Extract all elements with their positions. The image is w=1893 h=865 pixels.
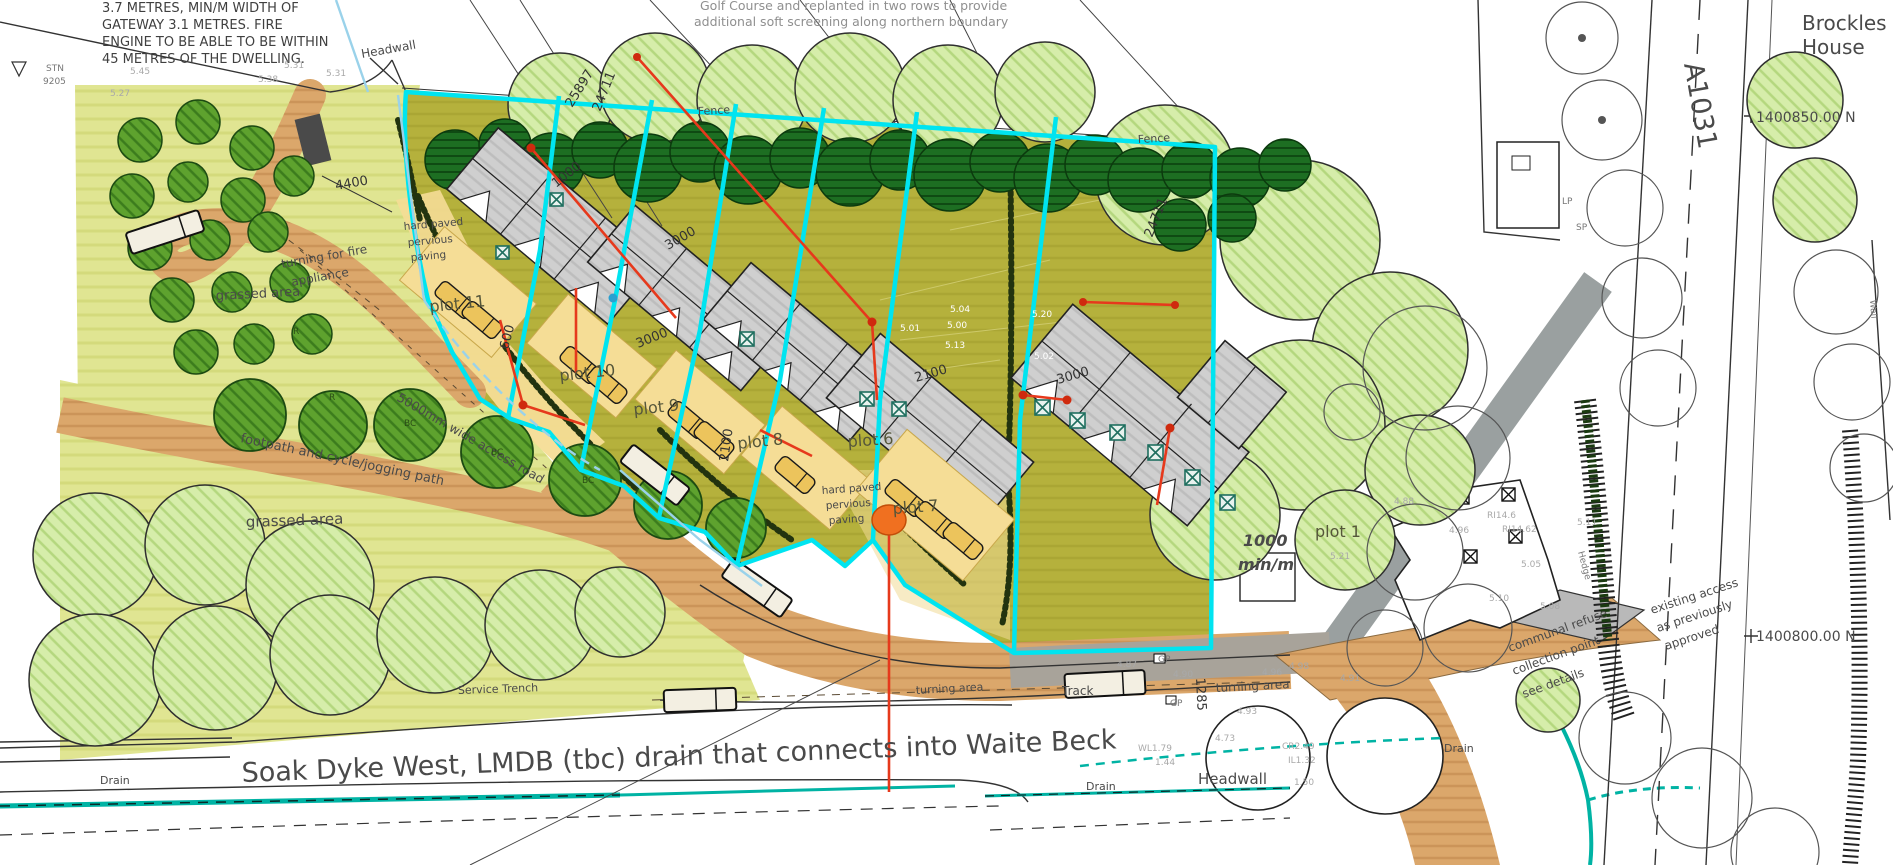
track-label: Track	[1061, 684, 1093, 698]
tree-code: R	[293, 327, 299, 337]
grid-ref-south: 1400800.00 N	[1756, 629, 1856, 645]
spot-level: 5.04	[950, 305, 970, 315]
spot-level: 4.93	[1237, 707, 1257, 717]
spot-level: 4.98	[1289, 662, 1309, 672]
headwall-bottom-label: Headwall	[1198, 770, 1267, 788]
tree-code: R	[329, 393, 335, 403]
spot-level: 5.45	[130, 67, 150, 77]
brockles-house-line1: Brockles	[1802, 11, 1887, 35]
drain-mid-label: Drain	[1086, 780, 1116, 793]
turning-area-east-label: turning area	[1215, 677, 1289, 695]
fire-note-line1: 3.7 METRES, MIN/M WIDTH OF	[102, 1, 299, 16]
spot-level: 5.31	[326, 69, 346, 79]
drain-east-label: Drain	[1444, 742, 1474, 755]
grassed-area-lower-label: grassed area	[246, 510, 344, 531]
gp-lower-label: GP	[1170, 699, 1183, 709]
roof-vent-mark	[496, 246, 509, 259]
spot-level: 1.44	[1155, 758, 1175, 768]
golf-note-line2: additional soft screening along northern…	[694, 14, 1009, 29]
spot-level: 5.02	[1034, 352, 1054, 362]
spot-level: 5.10	[1489, 594, 1509, 604]
spot-level: RI14.62	[1502, 525, 1537, 535]
tree-code: BC	[491, 448, 503, 458]
drain-west-label: Drain	[100, 774, 130, 787]
fire-note-line2: GATEWAY 3.1 METRES. FIRE	[102, 18, 283, 33]
spot-level: 4.96	[1449, 526, 1469, 536]
plot-7-label: plot 7	[892, 496, 939, 518]
a1031-road-label: A1031	[1677, 60, 1723, 151]
tree-code: BC	[404, 419, 416, 429]
golf-note-line1: Golf Course and replanted in two rows to…	[700, 0, 1007, 13]
site-plan-canvas: 3.7 METRES, MIN/M WIDTH OF GATEWAY 3.1 M…	[0, 0, 1893, 865]
spot-level: 1.50	[1294, 778, 1314, 788]
spot-level: 5.38	[258, 75, 278, 85]
site-plan: 3.7 METRES, MIN/M WIDTH OF GATEWAY 3.1 M…	[0, 0, 1893, 865]
spot-level: 5.01	[900, 324, 920, 334]
spot-level: CR2.49	[1282, 742, 1315, 752]
fire-note-line3: ENGINE TO BE ABLE TO BE WITHIN	[102, 35, 328, 50]
spot-level: 5.21	[1330, 552, 1350, 562]
spot-level: 5.20	[1032, 310, 1052, 320]
dim-1285: 1285	[1192, 677, 1209, 711]
stn-number: 9205	[43, 77, 66, 87]
spot-level: 4.73	[1215, 734, 1235, 744]
lp-label: LP	[1562, 197, 1573, 207]
spot-level: 4.96	[1262, 668, 1282, 678]
spot-level: 5.31	[284, 61, 304, 71]
hard-paved-east-line3: paving	[828, 513, 864, 527]
spot-level: IL1.32	[1288, 756, 1316, 766]
wall-label: Wall	[1867, 300, 1878, 319]
min-width-value: 1000	[1243, 531, 1288, 550]
spot-level: 4.87	[1117, 660, 1137, 670]
min-width-unit: min/m	[1238, 555, 1294, 574]
spot-level: 5.05	[1521, 560, 1541, 570]
spot-level: 4.90	[1173, 670, 1193, 680]
spot-level: 5.13	[945, 341, 965, 351]
roof-vent-mark	[550, 193, 563, 206]
fence-west-label: Fence	[697, 103, 730, 118]
hedge-label: Hedge	[1575, 550, 1592, 581]
spot-level: 5.08	[1540, 602, 1560, 612]
brockles-house-line2: House	[1802, 35, 1865, 59]
soak-dyke-label: Soak Dyke West, LMDB (tbc) drain that co…	[241, 724, 1117, 789]
plot-6-label: plot 6	[847, 429, 894, 451]
tree-code: BC	[582, 476, 594, 486]
spot-level: 5.00	[947, 321, 967, 331]
plot-1-label: plot 1	[1315, 522, 1361, 541]
sp-label: SP	[1576, 223, 1588, 233]
fire-note-line4: 45 METRES OF THE DWELLING.	[102, 52, 305, 67]
gp-upper-label: GP	[1158, 655, 1171, 665]
fence-east-label: Fence	[1137, 131, 1170, 146]
spot-level: RI14.6	[1487, 511, 1516, 521]
spot-level: 4.91	[1340, 674, 1360, 684]
spot-level: 5.27	[110, 89, 130, 99]
grid-ref-north: 1400850.00 N	[1756, 110, 1856, 126]
stn-label: STN	[46, 64, 64, 74]
headwall-top-label: Headwall	[360, 38, 417, 61]
spot-level: WL1.79	[1138, 744, 1172, 754]
spot-level: 5.11	[1577, 518, 1597, 528]
spot-level: 4.88	[1394, 497, 1414, 507]
